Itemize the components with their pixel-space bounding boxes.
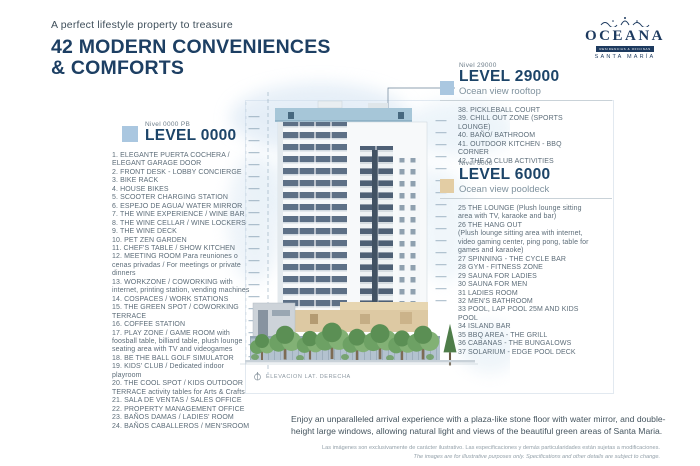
amenity-item: 17. PLAY ZONE / GAME ROOM with foosball … — [112, 330, 250, 355]
amenity-item: 24. BAÑOS CABALLEROS / MEN'SROOM — [112, 423, 250, 431]
page-title-line-2: & COMFORTS — [51, 58, 331, 79]
amenity-item: 4. HOUSE BIKES — [112, 186, 250, 194]
amenity-item: 41. OUTDOOR KITCHEN - BBQ CORNER — [458, 141, 594, 158]
header: A perfect lifestyle property to treasure… — [51, 19, 331, 79]
level-title: LEVEL 6000 — [459, 167, 550, 183]
amenity-item: 15. THE GREEN SPOT / COWORKING TERRACE — [112, 304, 250, 321]
amenity-item: 32 MEN'S BATHROOM — [458, 298, 594, 306]
amenity-item: 12. MEETING ROOM Para reuniones o cenas … — [112, 253, 250, 278]
elevation-caption-label: ELEVACION LAT. DERECHA — [266, 374, 351, 380]
amenity-item: 7. THE WINE EXPERIENCE / WINE BAR — [112, 211, 250, 219]
logo-wordmark: OCEANA — [572, 28, 678, 45]
amenity-item: 3. BIKE RACK — [112, 177, 250, 185]
level-title: LEVEL 0000 — [145, 128, 236, 144]
disclaimer-english: The images are for illustrative purposes… — [240, 453, 660, 462]
description-paragraph: Enjoy an unparalleled arrival experience… — [291, 413, 671, 437]
amenity-list-level-29000: 38. PICKLEBALL COURT39. CHILL OUT ZONE (… — [440, 107, 594, 166]
amenity-list-level-6000: 25 THE LOUNGE (Plush lounge sitting area… — [440, 205, 594, 357]
divider — [440, 198, 612, 199]
disclaimer-spanish: Las imágenes son exclusivamente de carác… — [240, 444, 660, 453]
amenity-item: 25 THE LOUNGE (Plush lounge sitting area… — [458, 205, 594, 222]
amenity-item: 30 SAUNA FOR MEN — [458, 281, 594, 289]
elevation-caption: ELEVACION LAT. DERECHA — [253, 372, 351, 381]
amenity-item: 8. THE WINE CELLAR / WINE LOCKERS — [112, 220, 250, 228]
level-sublabel: Ocean view rooftop — [459, 86, 559, 97]
amenity-item: 16. COFFEE STATION — [112, 321, 250, 329]
amenity-item: 21. SALA DE VENTAS / SALES OFFICE — [112, 397, 250, 405]
divider — [440, 100, 612, 101]
amenity-item: 10. PET ZEN GARDEN — [112, 237, 250, 245]
amenity-item: 13. WORKZONE / COWORKING with internet, … — [112, 279, 250, 296]
amenity-item: 37 SOLARIUM - EDGE POOL DECK — [458, 349, 594, 357]
amenity-item: 22. PROPERTY MANAGEMENT OFFICE — [112, 406, 250, 414]
amenity-item: 36 CABANAS - THE BUNGALOWS — [458, 340, 594, 348]
level-29000-header: Nivel 29000 LEVEL 29000 Ocean view rooft… — [440, 62, 612, 97]
logo-location: SANTA MARÍA — [572, 54, 678, 60]
amenity-item: 9. THE WINE DECK — [112, 228, 250, 236]
wave-crown-icon — [595, 16, 655, 27]
level-color-swatch — [122, 126, 138, 142]
amenity-item: 1. ELEGANTE PUERTA COCHERA / ELEGANT GAR… — [112, 152, 250, 169]
legal-disclaimer: Las imágenes son exclusivamente de carác… — [240, 444, 660, 461]
amenity-item: 29 SAUNA FOR LADIES — [458, 273, 594, 281]
amenity-item: 19. KIDS' CLUB / Dedicated indoor playro… — [112, 363, 250, 380]
amenity-item: 31 LADIES ROOM — [458, 290, 594, 298]
amenity-item: 40. BAÑO/ BATHROOM — [458, 132, 594, 140]
level-6000-section: Nivel 6000 LEVEL 6000 Ocean view pooldec… — [440, 160, 612, 357]
amenity-item: 38. PICKLEBALL COURT — [458, 107, 594, 115]
amenity-item: 39. CHILL OUT ZONE (SPORTS LOUNGE) — [458, 115, 594, 132]
level-0000-header: Nivel 0000 PB LEVEL 0000 — [122, 121, 248, 144]
amenity-list-level-0000: 1. ELEGANTE PUERTA COCHERA / ELEGANT GAR… — [96, 152, 250, 431]
tagline: A perfect lifestyle property to treasure — [51, 19, 331, 31]
level-0000-section: Nivel 0000 PB LEVEL 0000 1. ELEGANTE PUE… — [96, 121, 248, 431]
amenity-item: 18. BE THE BALL GOLF SIMULATOR — [112, 355, 250, 363]
amenity-item: 20. THE COOL SPOT / KIDS OUTDOOR TERRACE… — [112, 380, 250, 397]
page-title-line-1: 42 MODERN CONVENIENCES — [51, 37, 331, 58]
level-title: LEVEL 29000 — [459, 69, 559, 85]
amenity-item: 26 THE HANG OUT (Plush lounge sitting ar… — [458, 222, 594, 256]
amenity-item: 2. FRONT DESK - LOBBY CONCIERGE — [112, 169, 250, 177]
amenity-item: 5. SCOOTER CHARGING STATION — [112, 194, 250, 202]
amenity-item: 11. CHEF'S TABLE / SHOW KITCHEN — [112, 245, 250, 253]
level-6000-header: Nivel 6000 LEVEL 6000 Ocean view pooldec… — [440, 160, 612, 195]
amenity-item: 33 POOL, LAP POOL 25M AND KIDS POOL — [458, 306, 594, 323]
amenity-item: 27 SPINNING - THE CYCLE BAR — [458, 256, 594, 264]
amenity-item: 14. COSPACES / WORK STATIONS — [112, 296, 250, 304]
brand-logo: OCEANA RESIDENCIAS & OFICINAS SANTA MARÍ… — [572, 16, 678, 60]
level-29000-section: Nivel 29000 LEVEL 29000 Ocean view rooft… — [440, 62, 612, 166]
level-color-swatch — [440, 179, 454, 193]
level-color-swatch — [440, 81, 454, 95]
amenity-item: 28 GYM - FITNESS ZONE — [458, 264, 594, 272]
logo-subtitle: RESIDENCIAS & OFICINAS — [596, 46, 654, 52]
section-marker-icon — [253, 372, 262, 381]
amenity-item: 23. BAÑOS DAMAS / LADIES' ROOM — [112, 414, 250, 422]
level-sublabel: Ocean view pooldeck — [459, 184, 550, 195]
amenity-item: 35 BBQ AREA - THE GRILL — [458, 332, 594, 340]
amenity-item: 34 ISLAND BAR — [458, 323, 594, 331]
amenity-item: 6. ESPEJO DE AGUA/ WATER MIRROR — [112, 203, 250, 211]
brochure-page: A perfect lifestyle property to treasure… — [0, 0, 700, 466]
